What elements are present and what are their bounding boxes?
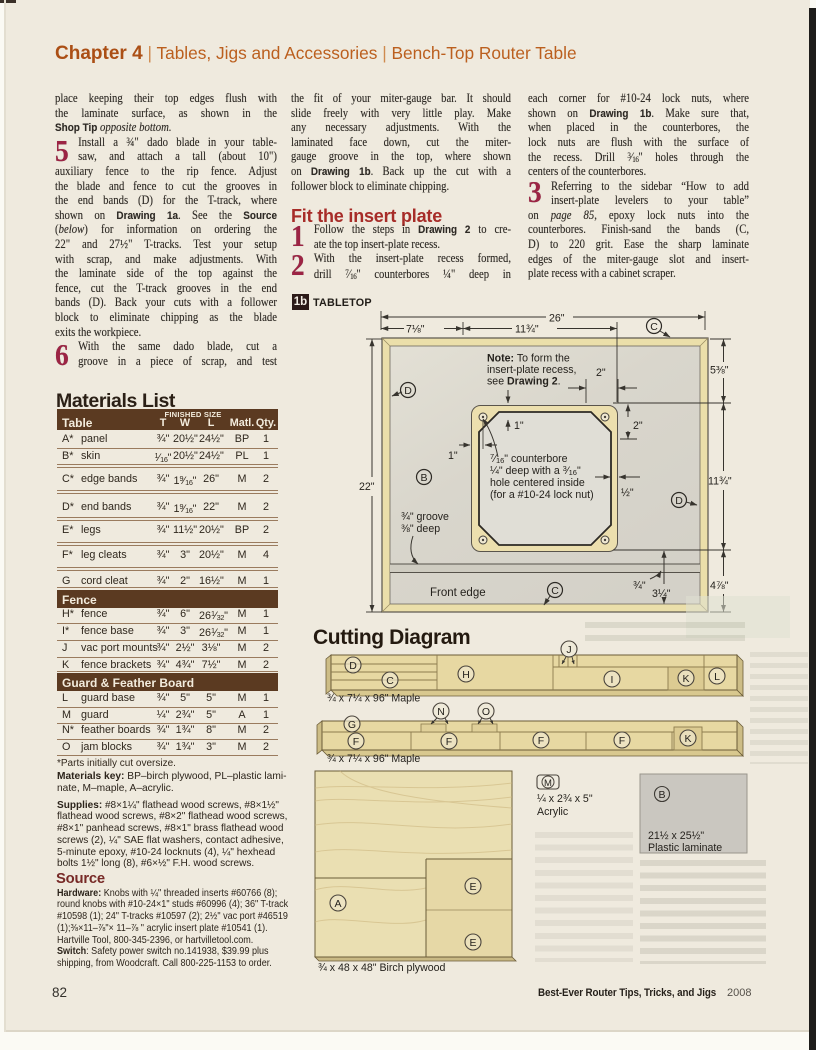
svg-text:insert-plate recess,: insert-plate recess, <box>487 364 577 376</box>
svg-text:L: L <box>714 671 720 683</box>
svg-text:G: G <box>348 719 356 731</box>
svg-text:¾ x 48 x 48" Birch plywood: ¾ x 48 x 48" Birch plywood <box>318 962 446 974</box>
svg-text:F: F <box>619 735 625 747</box>
svg-text:F: F <box>538 735 544 747</box>
svg-text:Note: To form the: Note: To form the <box>487 353 570 365</box>
svg-text:Plastic laminate: Plastic laminate <box>648 842 722 854</box>
svg-text:B: B <box>420 472 427 484</box>
svg-text:¾ x 7¼ x 96" Maple: ¾ x 7¼ x 96" Maple <box>327 693 420 705</box>
svg-text:(for a #10-24 lock nut): (for a #10-24 lock nut) <box>490 489 594 501</box>
svg-text:J: J <box>566 644 571 656</box>
svg-text:11¾": 11¾" <box>515 324 539 336</box>
svg-text:3¼": 3¼" <box>652 588 671 600</box>
svg-text:D: D <box>404 385 412 397</box>
svg-text:21½ x 25½": 21½ x 25½" <box>648 830 704 842</box>
svg-text:O: O <box>482 706 490 718</box>
svg-text:D: D <box>675 495 683 507</box>
svg-text:22": 22" <box>359 481 375 493</box>
svg-text:4⅞": 4⅞" <box>710 580 729 592</box>
svg-text:B: B <box>658 789 665 801</box>
svg-text:hole centered inside: hole centered inside <box>490 477 585 489</box>
svg-text:F: F <box>353 736 359 748</box>
svg-text:2": 2" <box>633 420 643 432</box>
svg-text:K: K <box>682 673 689 685</box>
svg-text:C: C <box>551 585 559 597</box>
svg-text:M: M <box>544 778 552 789</box>
svg-text:I: I <box>611 674 614 686</box>
svg-text:1": 1" <box>514 420 524 432</box>
svg-text:5⅜": 5⅜" <box>710 365 729 377</box>
svg-text:7⅛": 7⅛" <box>406 324 425 336</box>
svg-text:¼" deep with a 3⁄16": ¼" deep with a 3⁄16" <box>490 464 581 477</box>
svg-text:¾": ¾" <box>633 580 646 592</box>
svg-text:C: C <box>650 321 658 333</box>
svg-text:1": 1" <box>448 450 458 462</box>
svg-text:N: N <box>437 706 445 718</box>
svg-text:¼ x 2¾ x 5": ¼ x 2¾ x 5" <box>537 793 593 805</box>
svg-text:A: A <box>334 898 341 910</box>
svg-text:F: F <box>446 736 452 748</box>
svg-text:Acrylic: Acrylic <box>537 806 569 818</box>
svg-text:K: K <box>684 733 691 745</box>
svg-text:Front edge: Front edge <box>430 587 486 599</box>
svg-text:E: E <box>469 937 476 949</box>
svg-text:H: H <box>462 669 470 681</box>
svg-text:¾" groove: ¾" groove <box>401 511 449 523</box>
svg-text:26": 26" <box>549 313 565 325</box>
svg-text:¾ x 7¼ x 96" Maple: ¾ x 7¼ x 96" Maple <box>327 753 420 765</box>
svg-text:⅜" deep: ⅜" deep <box>401 523 440 535</box>
svg-text:2": 2" <box>596 367 606 379</box>
svg-text:11¾": 11¾" <box>708 476 732 488</box>
svg-text:C: C <box>386 675 394 687</box>
svg-text:D: D <box>349 660 357 672</box>
svg-text:½": ½" <box>621 487 634 499</box>
svg-text:E: E <box>469 881 476 893</box>
svg-text:see Drawing 2.: see Drawing 2. <box>487 376 561 388</box>
